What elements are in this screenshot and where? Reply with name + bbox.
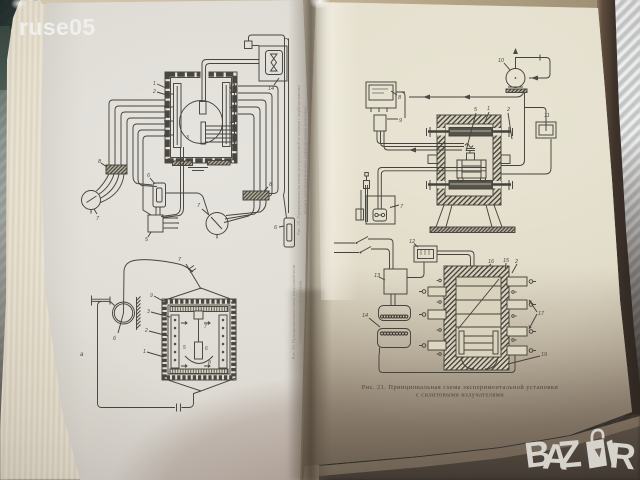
svg-text:Z: Z (556, 433, 583, 477)
svg-text:R: R (608, 434, 637, 477)
